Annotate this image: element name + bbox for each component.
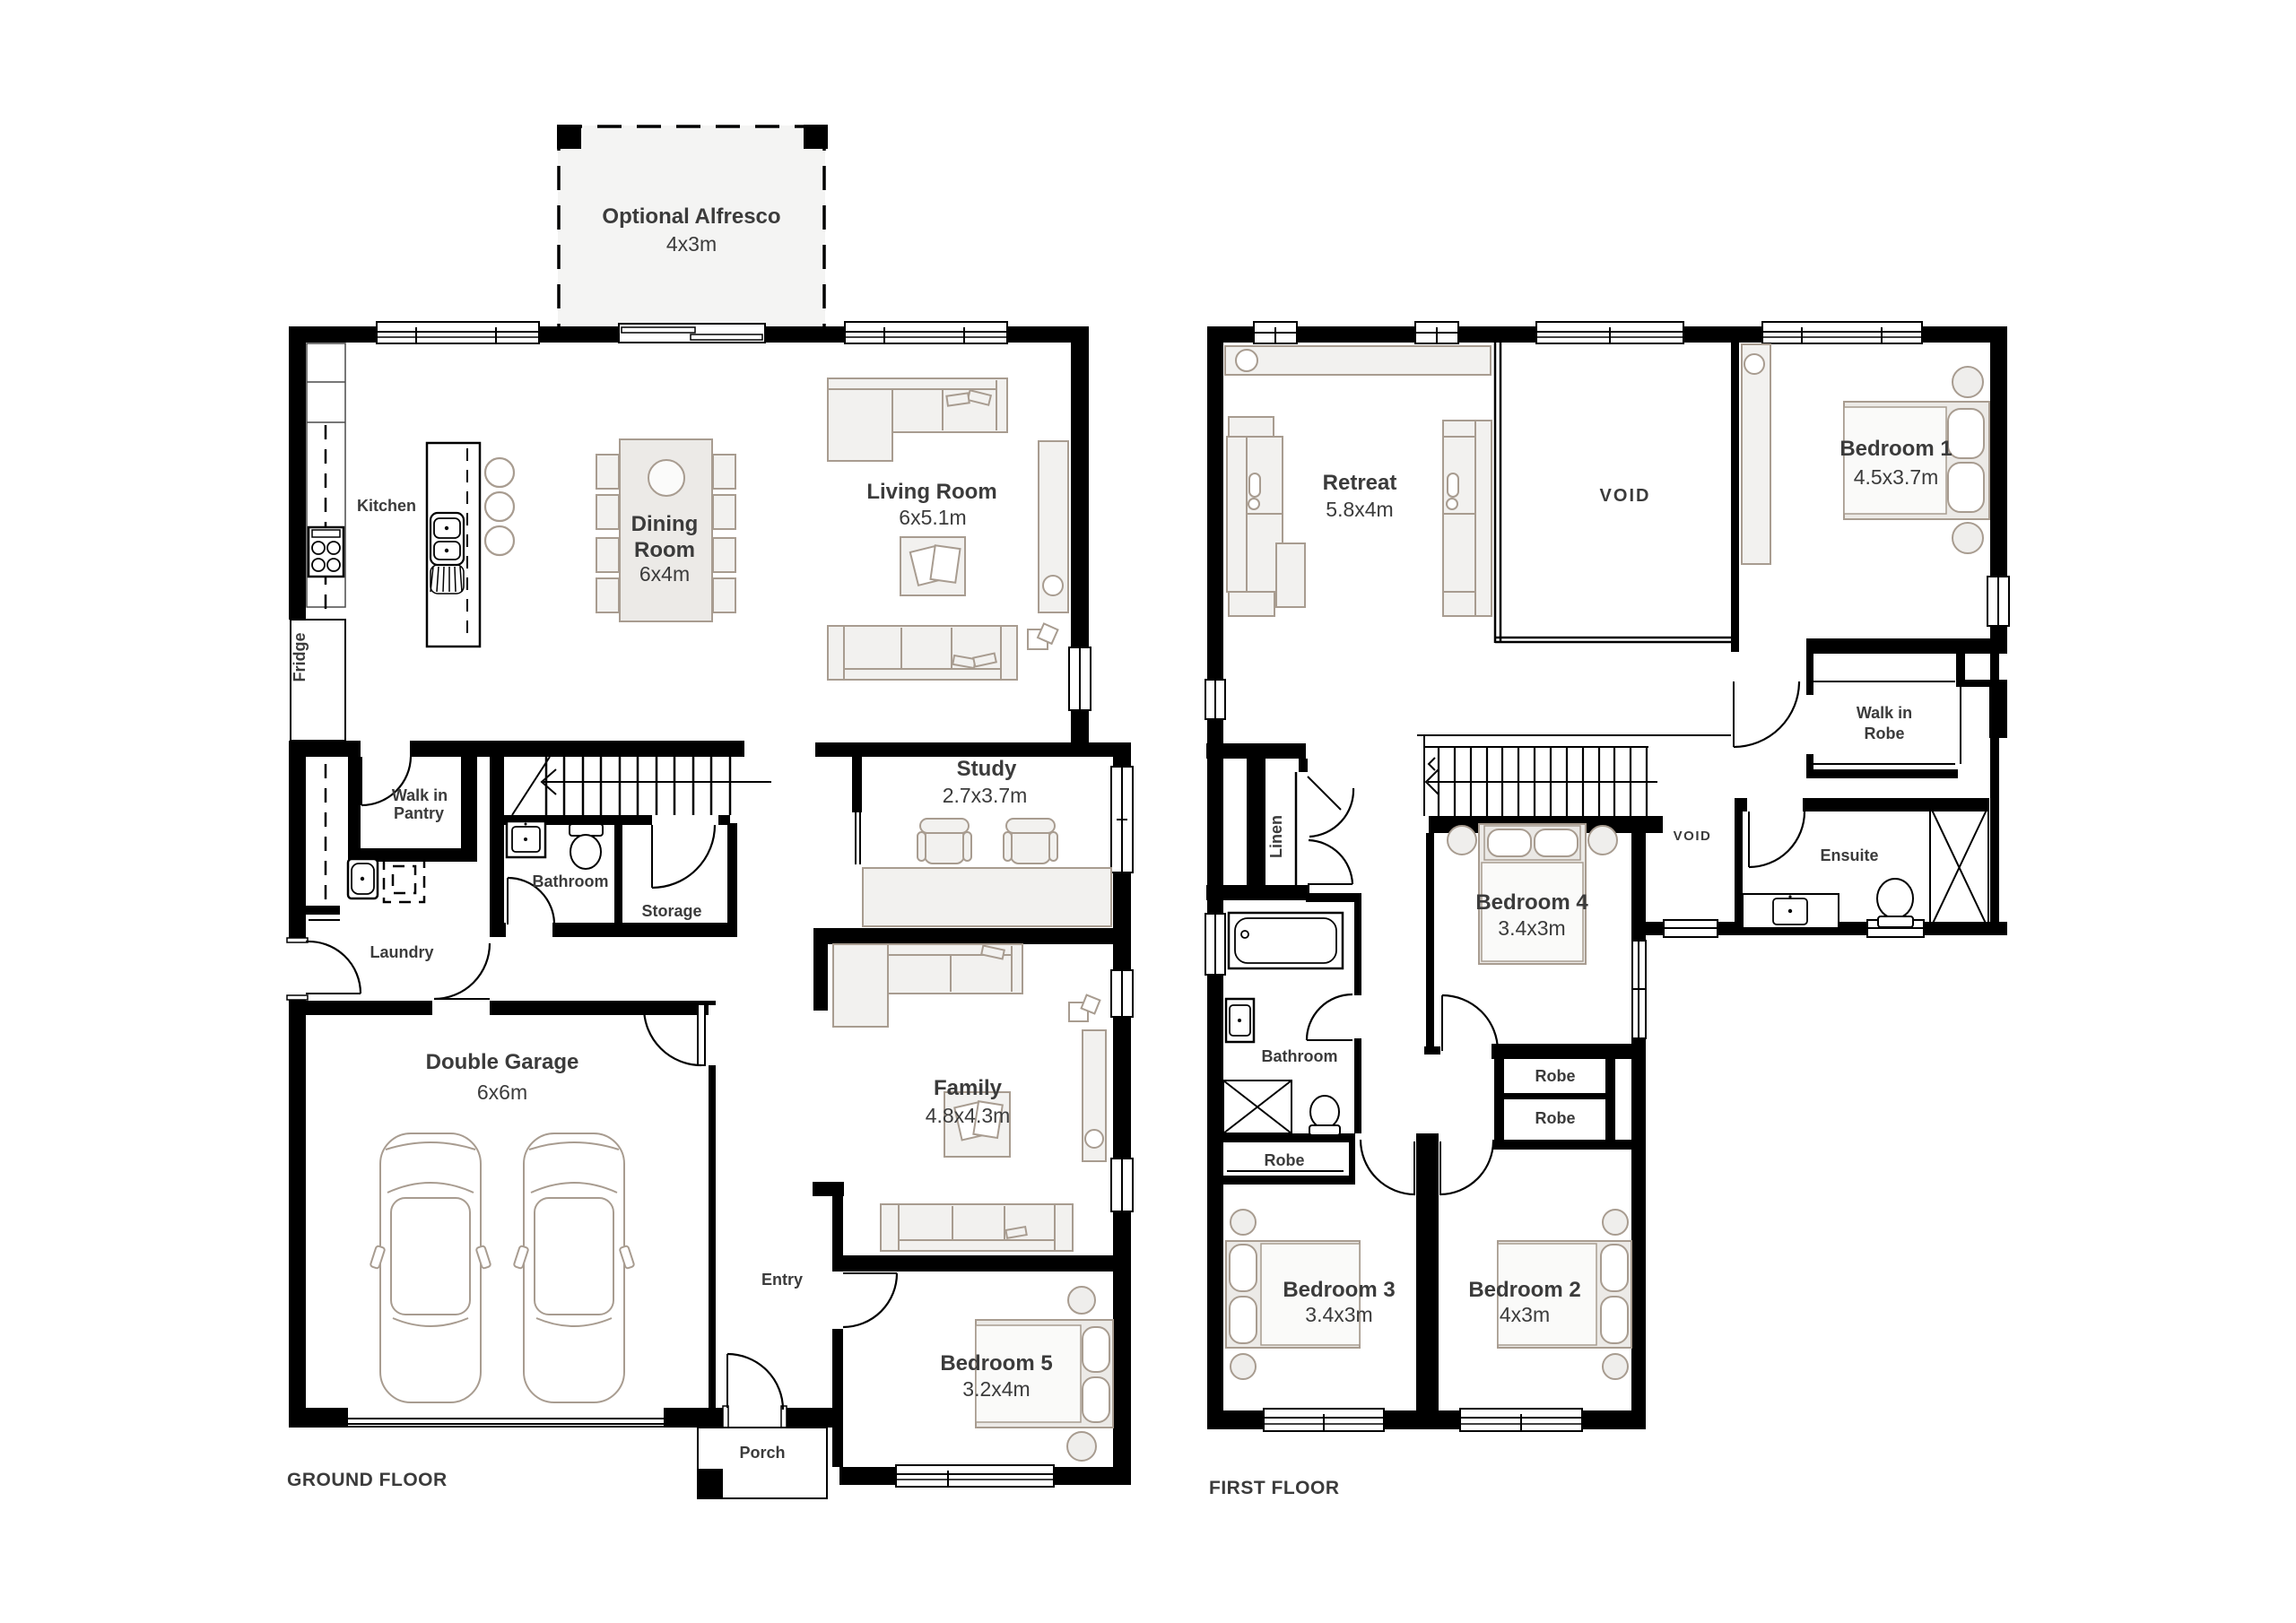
svg-text:3.4x3m: 3.4x3m [1498,916,1565,940]
svg-text:Porch: Porch [739,1444,785,1462]
svg-text:Optional Alfresco: Optional Alfresco [602,204,780,229]
svg-text:6x5.1m: 6x5.1m [899,506,966,529]
svg-text:4.8x4.3m: 4.8x4.3m [926,1104,1011,1127]
svg-text:Laundry: Laundry [370,943,433,961]
svg-text:Double Garage: Double Garage [426,1050,579,1074]
svg-text:Bedroom 4: Bedroom 4 [1475,890,1588,915]
svg-text:Room: Room [634,538,695,562]
svg-text:4.5x3.7m: 4.5x3.7m [1854,465,1939,489]
svg-text:Robe: Robe [1865,725,1905,742]
svg-text:Storage: Storage [641,902,701,920]
svg-text:6x4m: 6x4m [639,562,690,586]
svg-text:Bedroom 5: Bedroom 5 [940,1351,1052,1376]
svg-text:Retreat: Retreat [1323,471,1397,495]
svg-text:Bathroom: Bathroom [533,872,609,890]
svg-text:4x3m: 4x3m [1500,1303,1550,1326]
svg-text:Ensuite: Ensuite [1820,846,1878,864]
svg-text:Robe: Robe [1265,1151,1305,1169]
svg-text:Bathroom: Bathroom [1262,1047,1338,1065]
svg-text:Fridge: Fridge [291,632,309,681]
svg-text:3.2x4m: 3.2x4m [962,1377,1030,1401]
svg-text:Family: Family [934,1076,1003,1100]
svg-text:Bedroom 1: Bedroom 1 [1839,437,1952,461]
svg-text:4x3m: 4x3m [666,232,717,256]
svg-text:Walk in: Walk in [1857,704,1912,722]
svg-text:FIRST FLOOR: FIRST FLOOR [1209,1478,1340,1498]
svg-text:3.4x3m: 3.4x3m [1305,1303,1372,1326]
svg-text:VOID: VOID [1600,486,1651,506]
svg-text:Kitchen: Kitchen [357,497,416,515]
svg-text:Pantry: Pantry [394,804,444,822]
svg-text:Entry: Entry [761,1271,803,1289]
svg-text:Robe: Robe [1535,1109,1576,1127]
svg-text:Bedroom 2: Bedroom 2 [1468,1278,1580,1302]
svg-text:6x6m: 6x6m [477,1081,527,1104]
svg-text:GROUND FLOOR: GROUND FLOOR [287,1470,448,1490]
svg-text:VOID: VOID [1674,829,1712,844]
svg-text:Study: Study [957,757,1017,781]
svg-text:Bedroom 3: Bedroom 3 [1283,1278,1395,1302]
svg-text:Dining: Dining [631,512,699,536]
svg-text:Robe: Robe [1535,1067,1576,1085]
svg-text:5.8x4m: 5.8x4m [1326,498,1393,521]
svg-text:Walk in: Walk in [392,786,448,804]
svg-text:Linen: Linen [1267,815,1285,858]
svg-text:2.7x3.7m: 2.7x3.7m [943,784,1028,807]
svg-text:Living Room: Living Room [866,480,996,504]
